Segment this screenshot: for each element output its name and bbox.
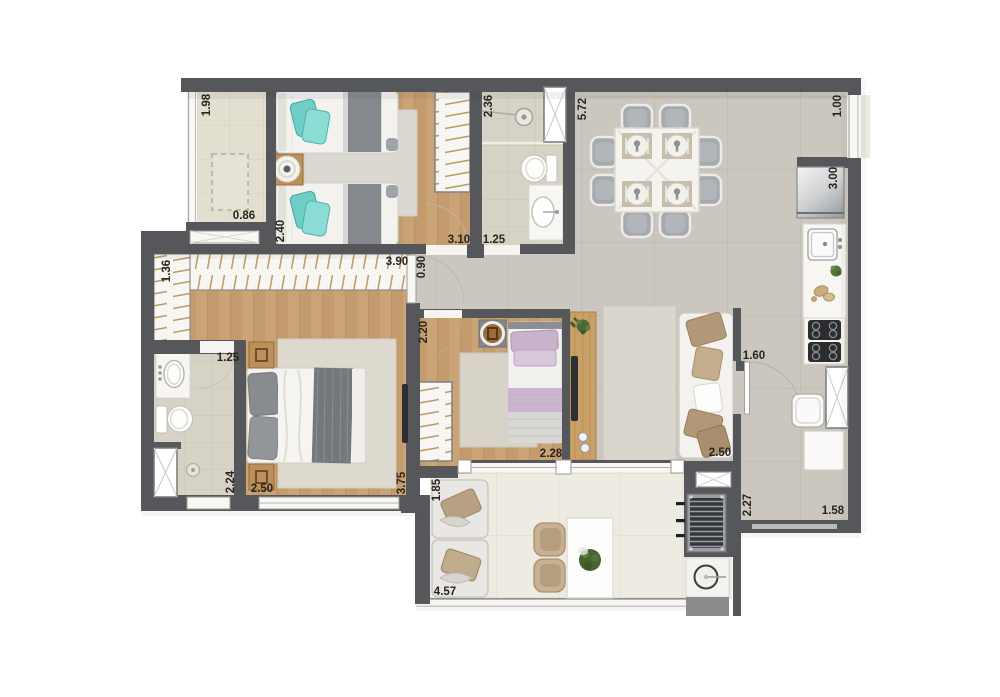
svg-text:1.25: 1.25: [483, 234, 506, 246]
svg-text:3.10: 3.10: [448, 234, 470, 246]
svg-text:3.75: 3.75: [396, 471, 408, 494]
svg-text:1.98: 1.98: [201, 93, 213, 116]
svg-text:2.50: 2.50: [709, 447, 731, 459]
svg-text:2.24: 2.24: [225, 470, 237, 493]
svg-text:2.36: 2.36: [483, 95, 495, 117]
svg-text:0.86: 0.86: [233, 210, 255, 222]
svg-text:1.00: 1.00: [832, 95, 844, 117]
svg-text:3.90: 3.90: [386, 256, 408, 268]
svg-text:1.58: 1.58: [822, 505, 845, 517]
svg-text:1.60: 1.60: [743, 350, 765, 362]
svg-text:2.20: 2.20: [418, 321, 430, 343]
svg-text:4.57: 4.57: [434, 586, 456, 598]
svg-text:1.36: 1.36: [161, 260, 173, 282]
svg-text:2.28: 2.28: [540, 448, 563, 460]
svg-text:2.40: 2.40: [275, 220, 287, 242]
svg-text:2.27: 2.27: [742, 494, 754, 516]
svg-text:2.50: 2.50: [251, 483, 273, 495]
svg-text:1.85: 1.85: [431, 478, 443, 501]
svg-text:1.25: 1.25: [217, 352, 240, 364]
svg-text:5.72: 5.72: [577, 98, 589, 120]
svg-text:3.00: 3.00: [828, 167, 840, 189]
svg-text:0.90: 0.90: [416, 256, 428, 278]
